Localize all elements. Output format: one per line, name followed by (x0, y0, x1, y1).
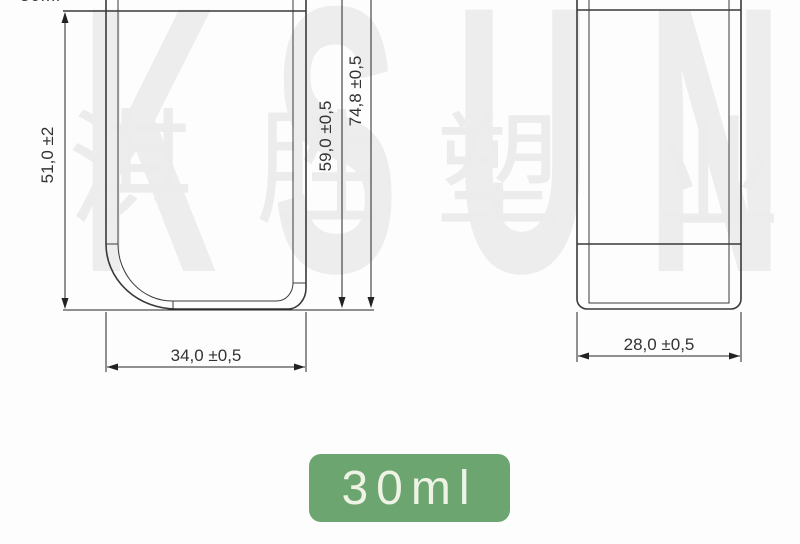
front-view-outline (63, 0, 306, 309)
dim-shoulder-height-label: 59,0 ±0,5 (316, 101, 335, 172)
front-view-inner-lines (106, 0, 306, 309)
volume-badge-label: 30ml (341, 461, 477, 516)
volume-badge: 30ml (309, 454, 510, 522)
dim-body-height-label: 51,0 ±2 (38, 127, 57, 184)
spec-sheet-page: KSUN 淇 胜 塑 业 30ml (0, 0, 800, 544)
side-view-inner-lines (589, 0, 729, 303)
dimension-lines (63, 0, 741, 372)
dimension-arrowheads (62, 12, 741, 371)
side-view-outline (577, 0, 741, 309)
dim-front-width-label: 34,0 ±0,5 (171, 346, 242, 365)
dim-total-height-label: 74,8 ±0,5 (346, 56, 365, 127)
dim-side-width-label: 28,0 ±0,5 (624, 335, 695, 354)
